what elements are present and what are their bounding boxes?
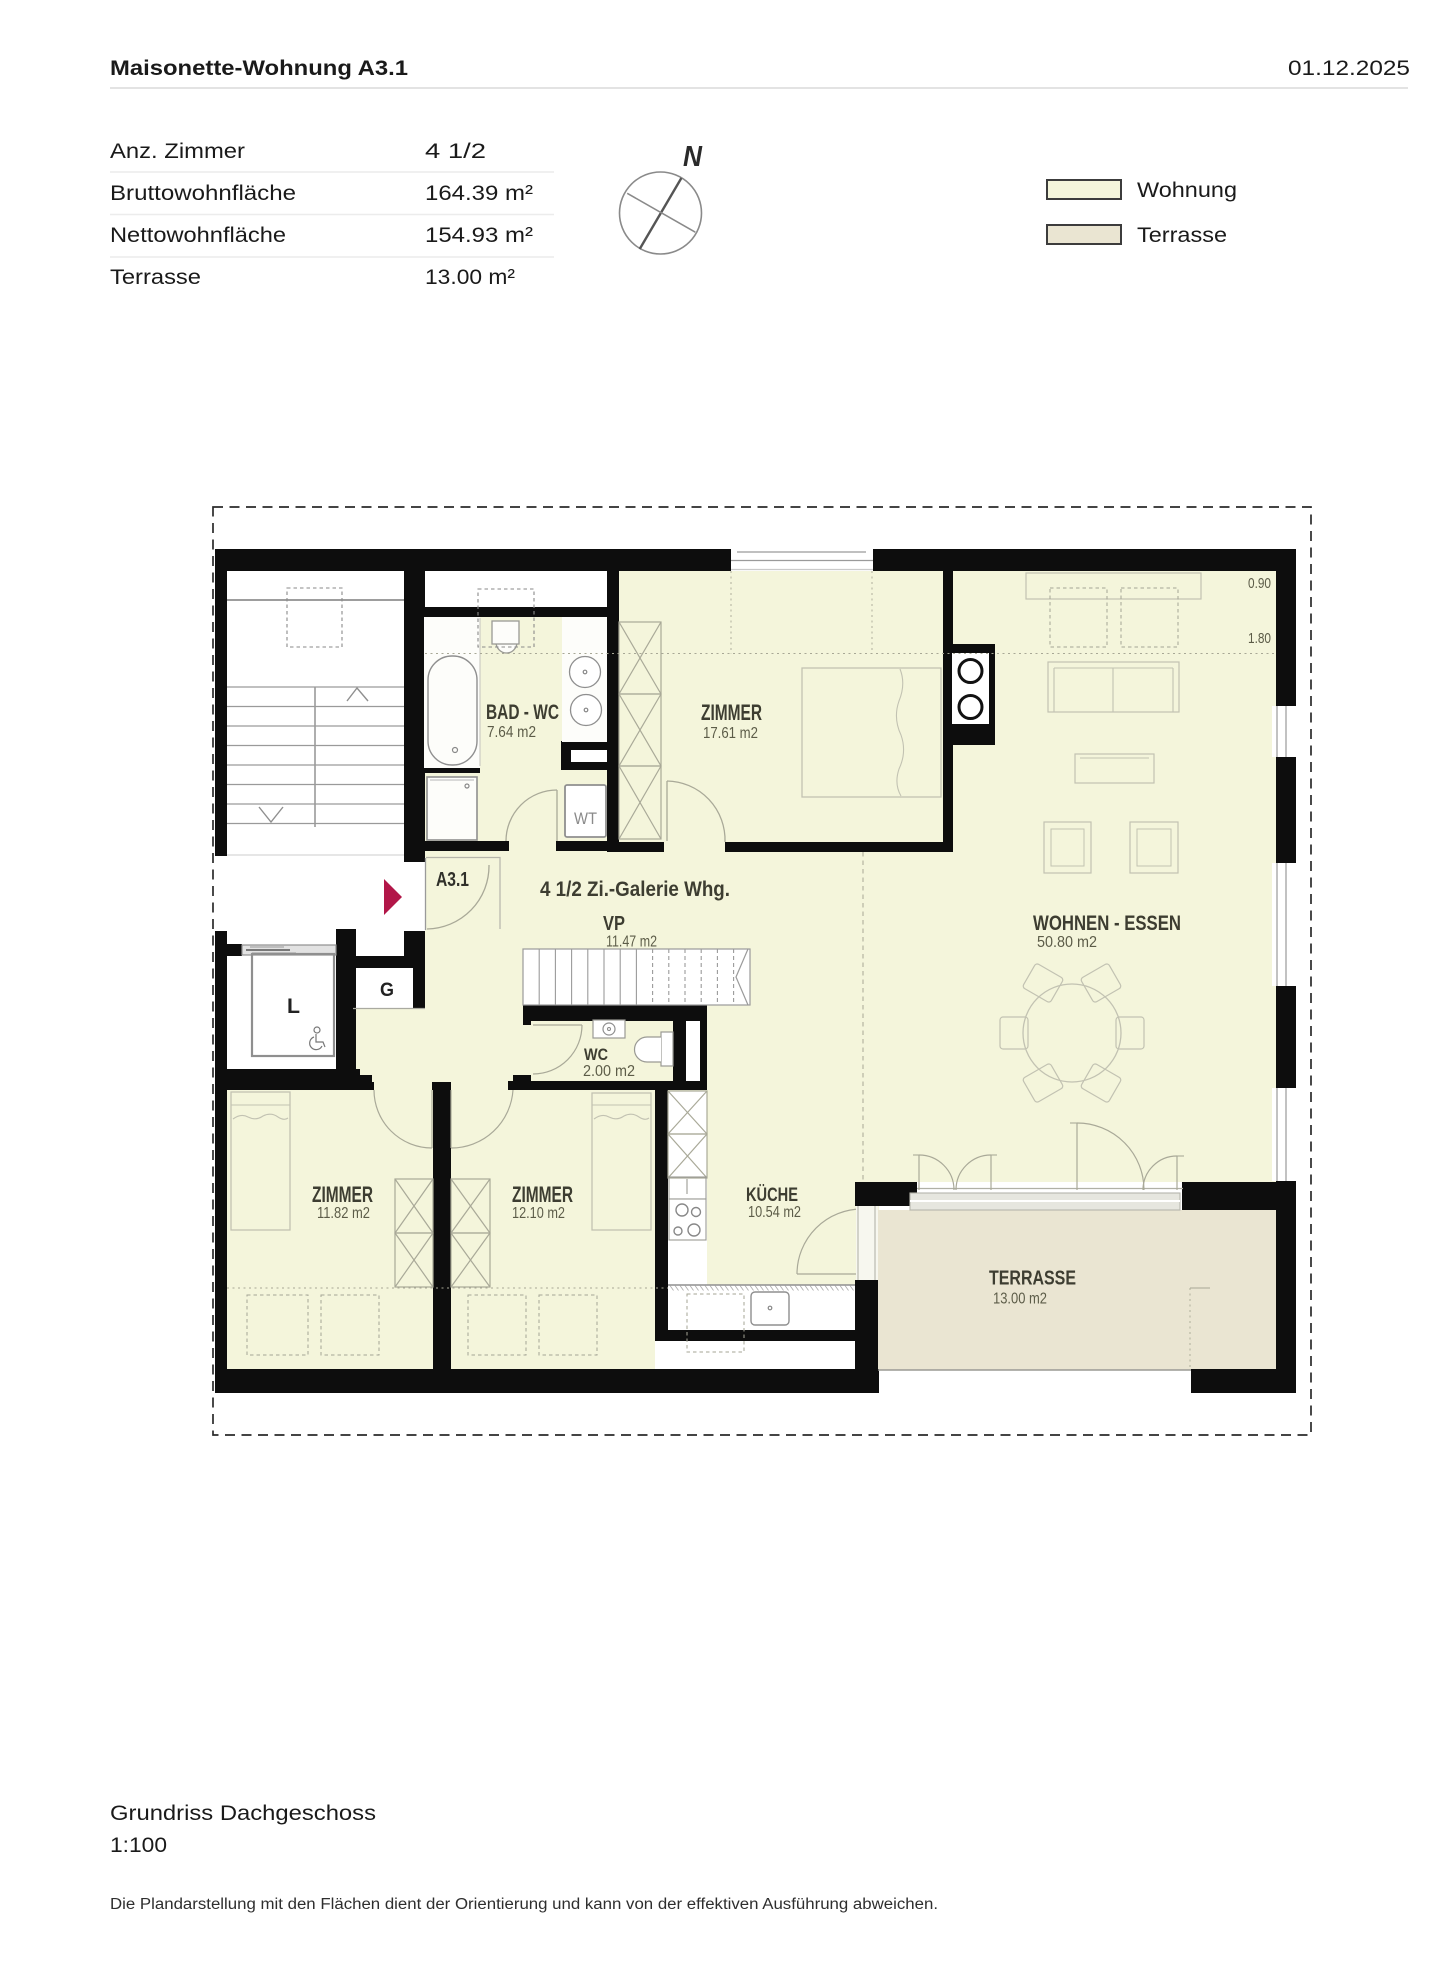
svg-text:Maisonette-Wohnung A3.1: Maisonette-Wohnung A3.1 — [110, 56, 408, 80]
svg-text:Grundriss Dachgeschoss: Grundriss Dachgeschoss — [110, 1802, 376, 1825]
svg-text:BAD - WC: BAD - WC — [486, 701, 559, 724]
svg-text:KÜCHE: KÜCHE — [746, 1185, 798, 1206]
svg-text:WOHNEN - ESSEN: WOHNEN - ESSEN — [1033, 912, 1181, 935]
svg-text:10.54 m2: 10.54 m2 — [748, 1204, 801, 1221]
svg-text:0.90: 0.90 — [1248, 575, 1271, 592]
svg-text:Die Plandarstellung mit den Fl: Die Plandarstellung mit den Flächen dien… — [110, 1896, 938, 1913]
svg-text:TERRASSE: TERRASSE — [989, 1268, 1076, 1290]
svg-text:1.80: 1.80 — [1248, 630, 1271, 647]
svg-text:13.00 m²: 13.00 m² — [425, 266, 515, 289]
svg-text:17.61 m2: 17.61 m2 — [703, 725, 758, 742]
svg-text:ZIMMER: ZIMMER — [512, 1182, 573, 1207]
svg-text:11.82 m2: 11.82 m2 — [317, 1205, 370, 1222]
svg-text:Terrasse: Terrasse — [1137, 224, 1227, 247]
svg-text:2.00 m2: 2.00 m2 — [583, 1063, 635, 1080]
svg-text:Bruttowohnfläche: Bruttowohnfläche — [110, 182, 296, 205]
svg-text:4 1/2 Zi.-Galerie Whg.: 4 1/2 Zi.-Galerie Whg. — [540, 878, 730, 901]
svg-text:Nettowohnfläche: Nettowohnfläche — [110, 224, 286, 247]
svg-text:50.80 m2: 50.80 m2 — [1037, 934, 1097, 951]
svg-text:N: N — [683, 141, 703, 173]
svg-text:164.39 m²: 164.39 m² — [425, 182, 533, 205]
svg-text:L: L — [287, 995, 300, 1018]
svg-text:13.00 m2: 13.00 m2 — [993, 1291, 1047, 1308]
svg-text:WT: WT — [574, 809, 597, 828]
svg-text:VP: VP — [603, 913, 625, 935]
svg-text:154.93 m²: 154.93 m² — [425, 224, 533, 247]
svg-text:1:100: 1:100 — [110, 1834, 167, 1857]
svg-text:4 1/2: 4 1/2 — [425, 140, 486, 163]
svg-text:01.12.2025: 01.12.2025 — [1288, 57, 1410, 80]
svg-text:WC: WC — [584, 1045, 608, 1064]
svg-text:11.47 m2: 11.47 m2 — [606, 934, 657, 951]
svg-text:ZIMMER: ZIMMER — [312, 1182, 373, 1207]
svg-text:7.64 m2: 7.64 m2 — [487, 724, 536, 741]
svg-text:Terrasse: Terrasse — [110, 266, 201, 289]
svg-text:12.10 m2: 12.10 m2 — [512, 1205, 565, 1222]
svg-text:Wohnung: Wohnung — [1137, 179, 1237, 202]
svg-text:ZIMMER: ZIMMER — [701, 700, 762, 725]
svg-text:G: G — [380, 980, 394, 1001]
svg-text:Anz. Zimmer: Anz. Zimmer — [110, 140, 245, 163]
svg-text:A3.1: A3.1 — [436, 869, 469, 891]
